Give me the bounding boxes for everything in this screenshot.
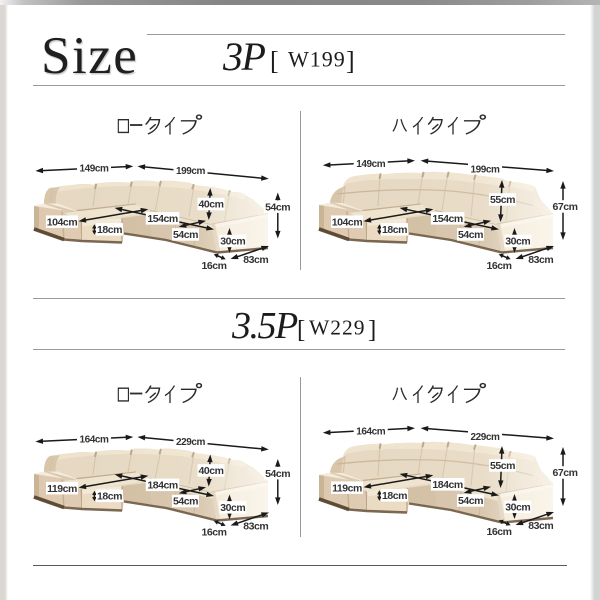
svg-text:30cm: 30cm [505, 502, 530, 514]
svg-text:164cm: 164cm [80, 434, 109, 445]
svg-text:W229: W229 [309, 316, 366, 340]
svg-text:16cm: 16cm [201, 527, 226, 539]
svg-text:W199: W199 [288, 47, 346, 72]
svg-text:83cm: 83cm [528, 520, 553, 532]
svg-text:83cm: 83cm [243, 520, 268, 532]
svg-text:67cm: 67cm [552, 201, 577, 213]
svg-text:[: [ [297, 317, 305, 344]
svg-text:55cm: 55cm [490, 460, 515, 472]
svg-text:67cm: 67cm [552, 467, 577, 479]
svg-text:18cm: 18cm [97, 490, 122, 502]
svg-text:18cm: 18cm [382, 224, 407, 236]
svg-text:154cm: 154cm [432, 213, 463, 225]
svg-text:55cm: 55cm [490, 194, 515, 206]
svg-text:104cm: 104cm [47, 216, 78, 228]
svg-text:16cm: 16cm [486, 260, 511, 272]
svg-text:54cm: 54cm [173, 496, 198, 508]
svg-text:54cm: 54cm [458, 229, 483, 241]
svg-text:3P: 3P [222, 34, 266, 79]
svg-text:184cm: 184cm [432, 479, 463, 491]
svg-text:149cm: 149cm [80, 164, 109, 175]
svg-text:199cm: 199cm [176, 166, 205, 177]
svg-text:40cm: 40cm [198, 199, 223, 211]
svg-text:154cm: 154cm [147, 213, 178, 225]
svg-text:[: [ [270, 47, 279, 76]
svg-text:16cm: 16cm [201, 260, 226, 272]
svg-text:30cm: 30cm [505, 236, 530, 248]
svg-text:83cm: 83cm [528, 254, 553, 266]
svg-text:16cm: 16cm [486, 526, 511, 538]
svg-text:199cm: 199cm [471, 164, 500, 175]
svg-text:184cm: 184cm [147, 479, 178, 491]
svg-text:104cm: 104cm [332, 216, 363, 228]
svg-text:54cm: 54cm [265, 468, 290, 480]
svg-text:164cm: 164cm [356, 426, 385, 437]
svg-text:54cm: 54cm [458, 495, 483, 507]
svg-text:54cm: 54cm [173, 229, 198, 241]
svg-text:83cm: 83cm [243, 254, 268, 266]
svg-text:30cm: 30cm [220, 502, 245, 514]
svg-text:18cm: 18cm [382, 490, 407, 502]
svg-text:229cm: 229cm [471, 432, 500, 443]
svg-text:149cm: 149cm [356, 159, 385, 170]
svg-text:18cm: 18cm [97, 224, 122, 236]
svg-text:54cm: 54cm [265, 201, 290, 213]
svg-text:3.5P: 3.5P [231, 305, 298, 347]
svg-text:30cm: 30cm [220, 236, 245, 248]
svg-text:]: ] [368, 317, 376, 344]
svg-text:229cm: 229cm [176, 437, 205, 448]
svg-text:119cm: 119cm [332, 482, 362, 494]
svg-text:]: ] [346, 47, 355, 76]
svg-text:40cm: 40cm [198, 465, 223, 477]
svg-text:119cm: 119cm [47, 483, 77, 495]
